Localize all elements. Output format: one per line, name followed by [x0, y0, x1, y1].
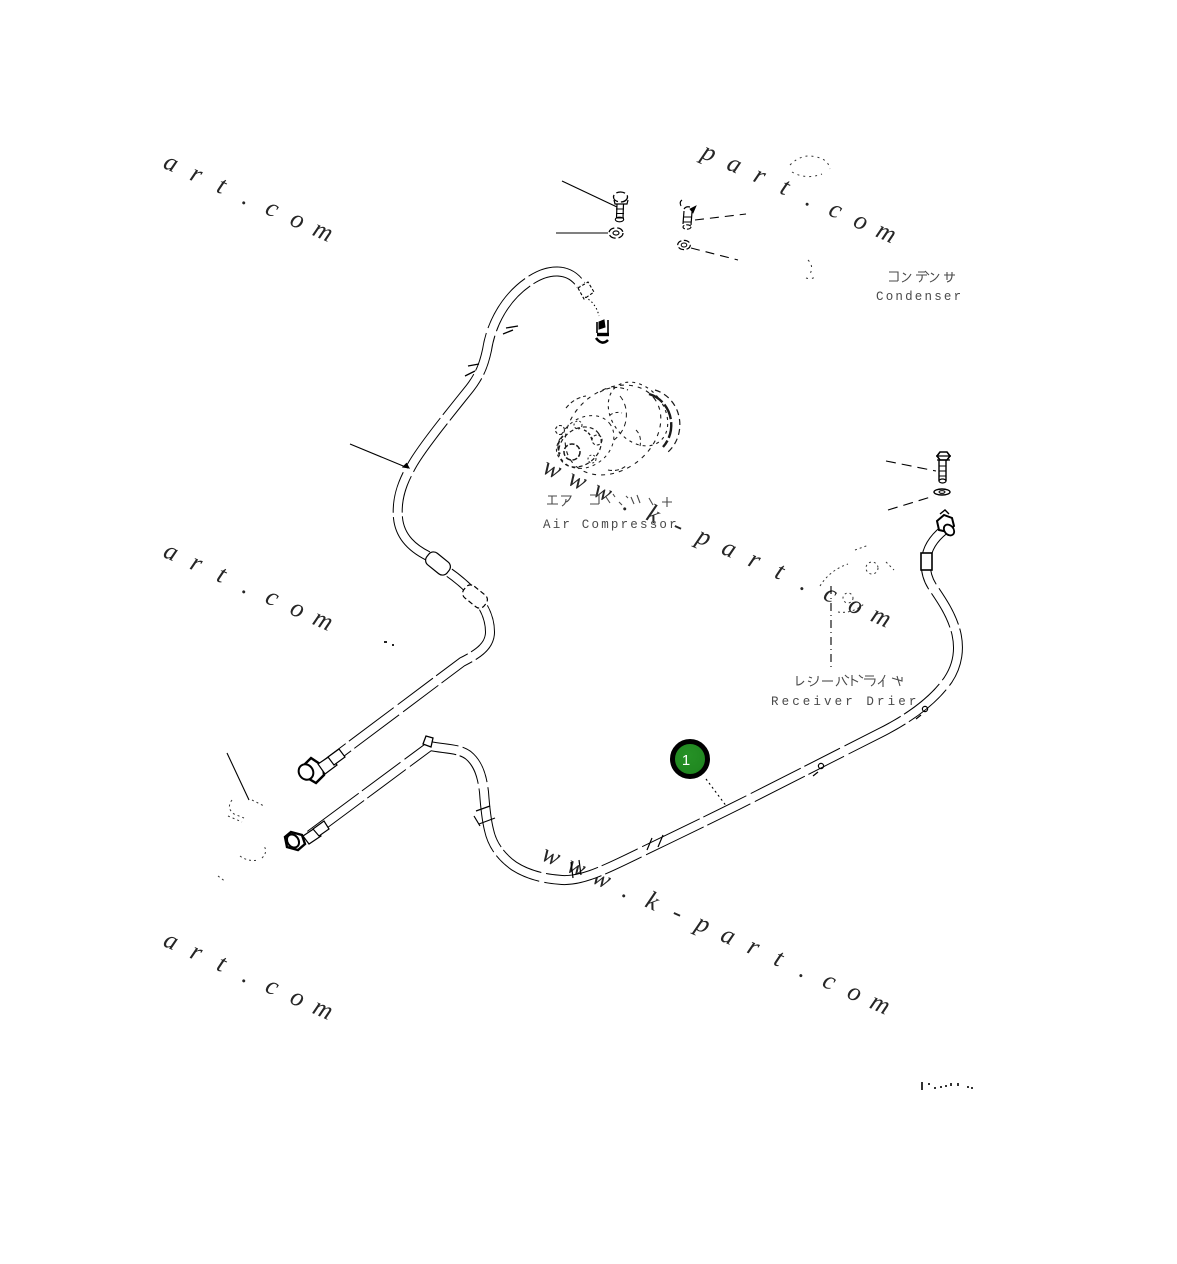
svg-text:Air Compressor: Air Compressor: [543, 518, 679, 532]
svg-text:Condenser: Condenser: [876, 290, 963, 304]
svg-text:Receiver Drier: Receiver Drier: [771, 695, 919, 709]
svg-text:1: 1: [682, 752, 690, 769]
